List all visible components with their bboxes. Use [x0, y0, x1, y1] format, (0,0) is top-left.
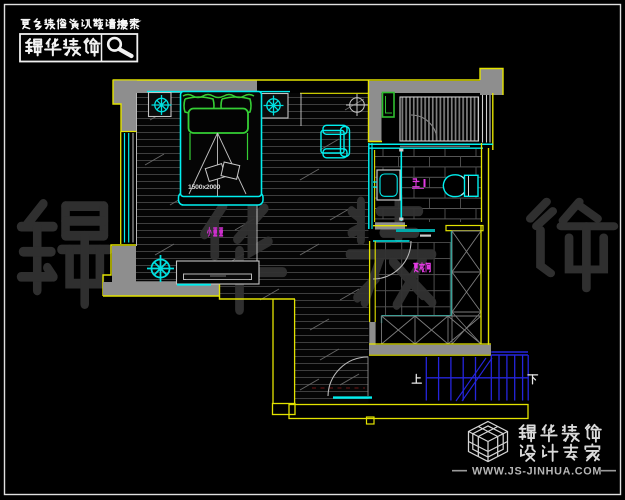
svg-text:WWW.JS-JINHUA.COM: WWW.JS-JINHUA.COM — [472, 466, 602, 478]
svg-text:1500x2000: 1500x2000 — [188, 184, 221, 191]
